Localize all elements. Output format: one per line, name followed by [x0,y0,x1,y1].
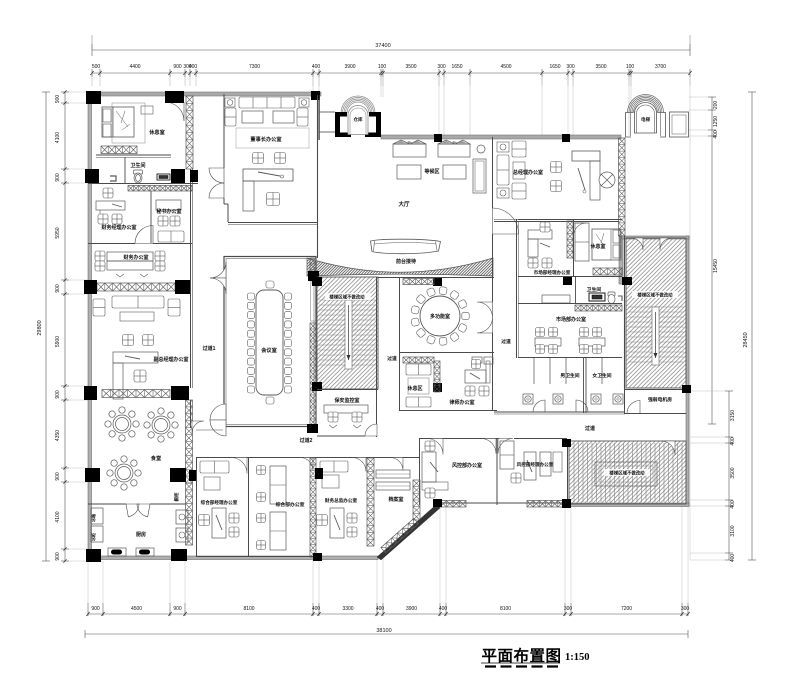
svg-text:3300: 3300 [342,606,353,612]
svg-text:400: 400 [312,64,321,70]
svg-text:市场部经理办公室: 市场部经理办公室 [534,269,571,276]
svg-text:过道1: 过道1 [203,345,216,352]
svg-text:37400: 37400 [375,43,390,49]
svg-text:综合部办公室: 综合部办公室 [276,501,305,508]
svg-text:卫生间: 卫生间 [130,162,145,169]
svg-text:4100: 4100 [55,132,61,143]
svg-text:15450: 15450 [713,259,719,273]
svg-text:5900: 5900 [55,336,61,347]
svg-text:7200: 7200 [621,606,632,612]
svg-text:100: 100 [378,64,387,70]
svg-text:8100: 8100 [500,606,511,612]
svg-text:400: 400 [730,500,736,509]
svg-text:会议室: 会议室 [261,346,277,354]
svg-text:3100: 3100 [730,525,736,536]
svg-text:3500: 3500 [405,64,416,70]
svg-text:橱柜: 橱柜 [173,492,180,501]
svg-text:风控部经理办公室: 风控部经理办公室 [517,461,554,468]
svg-text:400: 400 [730,437,736,446]
svg-text:财务经理办公室: 财务经理办公室 [100,224,136,231]
svg-text:食堂: 食堂 [150,454,161,462]
svg-text:总经理办公室: 总经理办公室 [513,169,543,176]
svg-text:冰箱: 冰箱 [90,514,96,522]
svg-text:副总经理办公室: 副总经理办公室 [153,356,188,363]
svg-text:300: 300 [437,64,446,70]
svg-text:1650: 1650 [451,64,462,70]
svg-text:过道: 过道 [387,355,397,362]
svg-text:4350: 4350 [55,430,61,441]
svg-text:8100: 8100 [243,606,254,612]
svg-text:900: 900 [55,390,61,399]
svg-text:过道: 过道 [585,425,595,432]
svg-text:400: 400 [713,130,719,139]
svg-text:4500: 4500 [131,606,142,612]
svg-text:市场部办公室: 市场部办公室 [556,316,586,323]
svg-text:900: 900 [55,95,61,104]
svg-text:3700: 3700 [655,64,666,70]
svg-text:楼梯区域不做改动: 楼梯区域不做改动 [637,292,673,299]
svg-text:500: 500 [92,64,101,70]
svg-text:休息室: 休息室 [589,243,605,250]
svg-text:38100: 38100 [376,628,391,634]
svg-text:4100: 4100 [55,511,61,522]
svg-text:男卫生间: 男卫生间 [560,372,579,379]
svg-text:900: 900 [91,606,100,612]
svg-text:财务办公室: 财务办公室 [122,254,148,261]
svg-text:厨房: 厨房 [136,531,146,538]
svg-text:900: 900 [55,472,61,481]
svg-text:保安监控室: 保安监控室 [333,397,359,404]
svg-text:律师办公室: 律师办公室 [449,399,474,406]
svg-text:300: 300 [566,64,575,70]
svg-text:900: 900 [55,552,61,561]
svg-text:楼梯区域不做改动: 楼梯区域不做改动 [609,470,645,477]
svg-text:综合部经理办公室: 综合部经理办公室 [201,499,238,506]
svg-text:3150: 3150 [730,410,736,421]
svg-text:1650: 1650 [549,64,560,70]
svg-text:过道: 过道 [501,338,511,345]
svg-text:1250: 1250 [713,116,719,127]
svg-text:大厅: 大厅 [398,200,410,208]
svg-text:400: 400 [189,64,198,70]
svg-text:100: 100 [626,64,635,70]
svg-text:3500: 3500 [595,64,606,70]
svg-text:档案室: 档案室 [388,496,403,503]
svg-text:风控部办公室: 风控部办公室 [452,462,482,469]
svg-text:冰柜: 冰柜 [90,533,96,541]
svg-text:900: 900 [173,64,182,70]
svg-text:多功能室: 多功能室 [430,313,450,320]
svg-text:900: 900 [173,606,182,612]
svg-text:电梯: 电梯 [641,116,650,123]
svg-text:仓库: 仓库 [353,116,363,123]
svg-text:1:150: 1:150 [565,652,590,663]
svg-text:4500: 4500 [500,64,511,70]
svg-text:900: 900 [55,173,61,182]
svg-text:卫生间: 卫生间 [587,286,602,293]
svg-text:3500: 3500 [730,467,736,478]
svg-text:3900: 3900 [406,606,417,612]
svg-text:4400: 4400 [129,64,140,70]
svg-text:过道2: 过道2 [300,437,313,444]
svg-text:900: 900 [55,284,61,293]
svg-text:5950: 5950 [55,227,61,238]
svg-text:3900: 3900 [344,64,355,70]
svg-text:平面布置图: 平面布置图 [481,646,561,665]
svg-text:董事长办公室: 董事长办公室 [250,135,281,143]
svg-text:等候区: 等候区 [424,168,439,175]
svg-text:200: 200 [713,101,719,110]
svg-text:楼梯区域不做改动: 楼梯区域不做改动 [329,294,365,301]
svg-text:7300: 7300 [249,64,260,70]
svg-text:财务总监办公室: 财务总监办公室 [324,497,358,504]
svg-text:28450: 28450 [743,332,749,347]
svg-text:29800: 29800 [37,320,43,335]
svg-text:秘书办公室: 秘书办公室 [156,208,181,215]
svg-text:400: 400 [730,554,736,563]
svg-text:休息区: 休息区 [406,385,422,392]
svg-text:前台接待: 前台接待 [396,258,416,265]
svg-text:强弱电机房: 强弱电机房 [648,396,672,403]
svg-text:休息室: 休息室 [148,128,165,136]
